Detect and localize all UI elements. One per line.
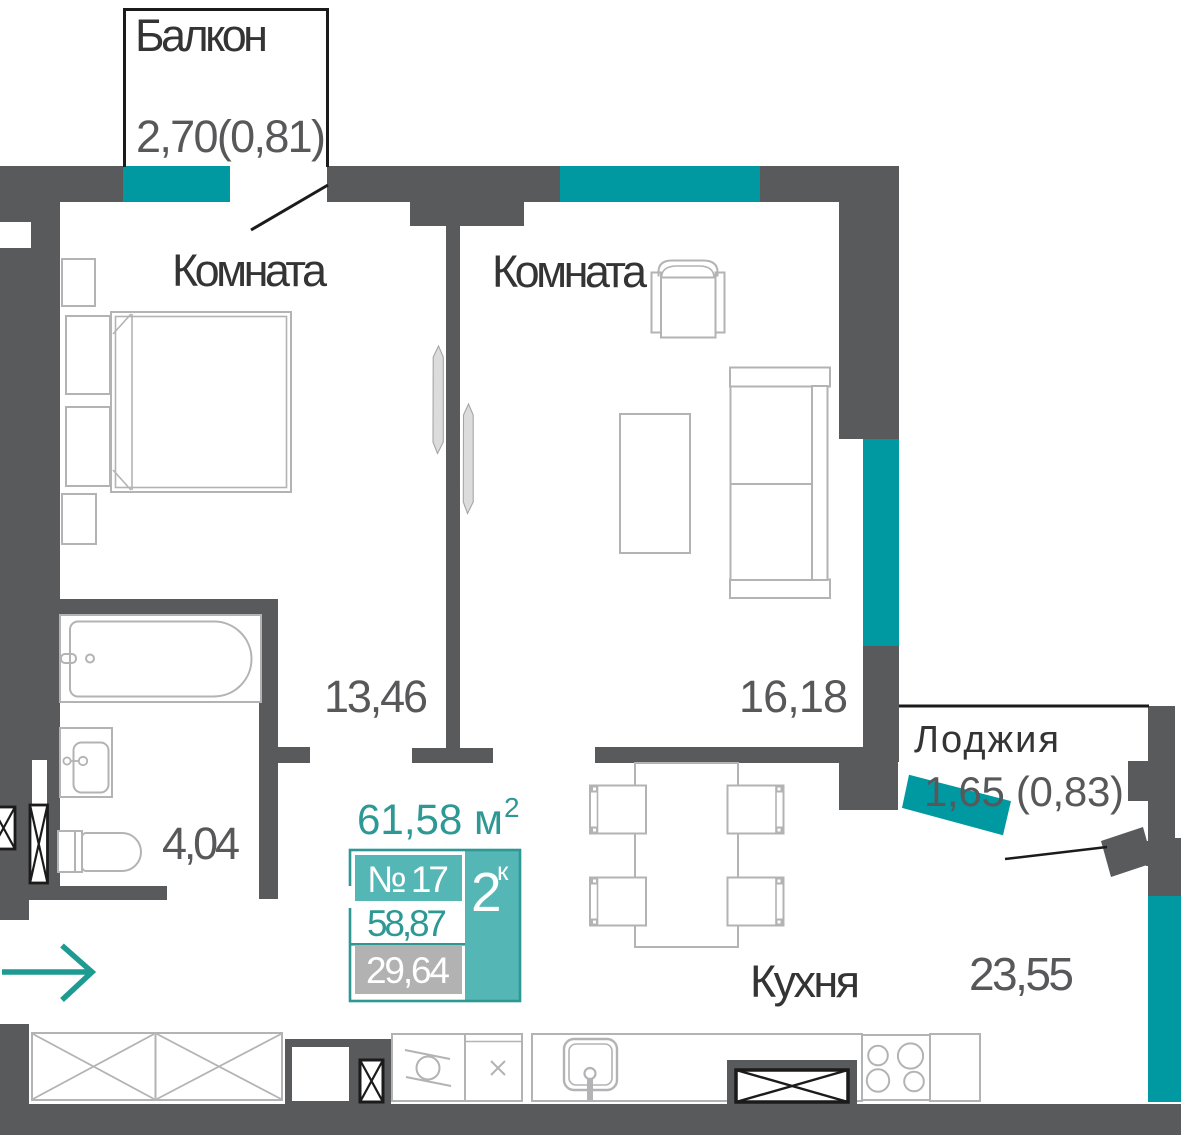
svg-text:1,65 (0,83): 1,65 (0,83) bbox=[924, 768, 1124, 815]
svg-text:№ 17: № 17 bbox=[367, 859, 449, 900]
svg-text:29,64: 29,64 bbox=[366, 950, 450, 991]
svg-text:61,58 м: 61,58 м bbox=[357, 796, 503, 844]
svg-text:23,55: 23,55 bbox=[969, 948, 1074, 1000]
svg-text:16,18: 16,18 bbox=[739, 671, 848, 722]
svg-text:Балкон: Балкон bbox=[135, 10, 268, 61]
svg-text:к: к bbox=[497, 856, 509, 886]
svg-text:Лоджия: Лоджия bbox=[914, 719, 1059, 761]
svg-text:Комната: Комната bbox=[172, 245, 328, 296]
svg-text:Комната: Комната bbox=[492, 246, 648, 297]
svg-text:13,46: 13,46 bbox=[324, 671, 428, 722]
svg-text:2,70(0,81): 2,70(0,81) bbox=[136, 111, 326, 162]
svg-text:Кухня: Кухня bbox=[750, 956, 860, 1007]
svg-text:2: 2 bbox=[504, 792, 520, 823]
svg-text:58,87: 58,87 bbox=[367, 903, 447, 944]
svg-text:4,04: 4,04 bbox=[162, 818, 240, 869]
